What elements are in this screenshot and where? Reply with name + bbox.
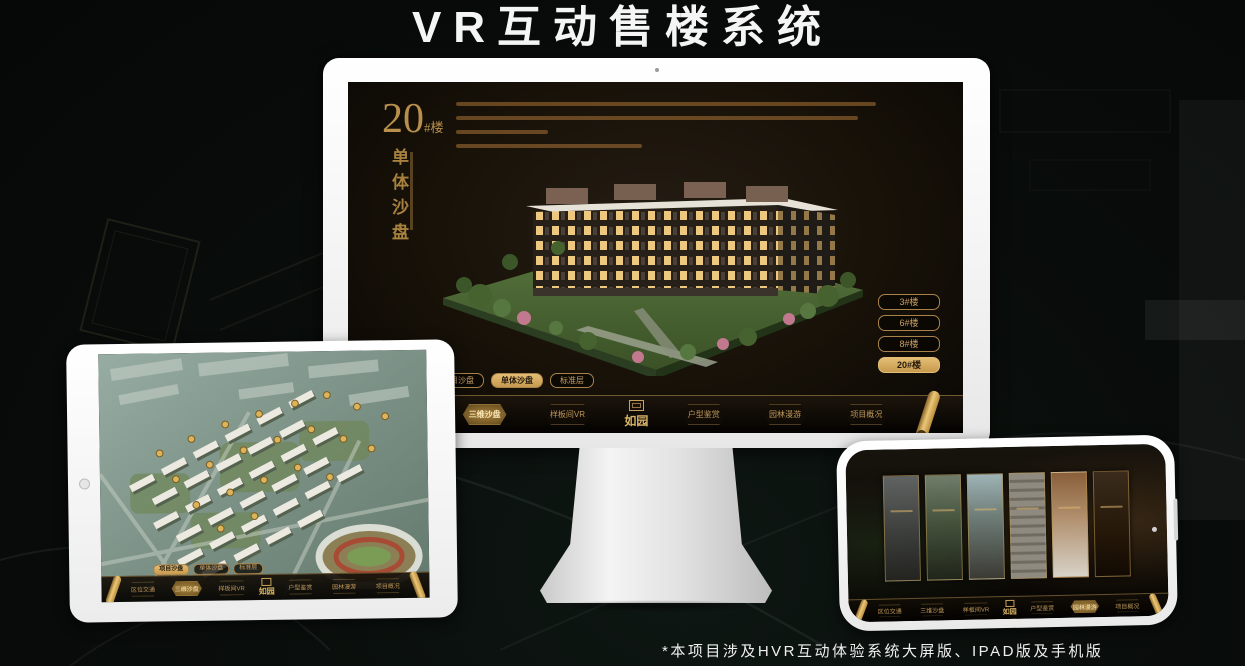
tab-standard-floor[interactable]: 标准层 xyxy=(550,373,594,388)
seal-icon xyxy=(261,578,271,586)
background-plaque-inner xyxy=(92,230,189,342)
panorama-gallery xyxy=(883,470,1131,581)
nav-item-floorplans[interactable]: 户型鉴赏 xyxy=(678,404,730,425)
nav-item-floorplans[interactable]: 户型鉴赏 xyxy=(282,579,318,595)
phone-camera-icon xyxy=(1152,527,1157,532)
brand-logo-text: 如园 xyxy=(1003,606,1017,616)
phone-device: 区位交通 三维沙盘 样板间VR 如园 户型鉴赏 园林漫游 项目概况 xyxy=(836,434,1178,631)
floor-button-8[interactable]: 8#楼 xyxy=(878,336,940,352)
aerial-masterplan-view[interactable] xyxy=(98,350,429,603)
floor-button-3[interactable]: 3#楼 xyxy=(878,294,940,310)
nav-item-project-overview[interactable]: 项目概况 xyxy=(370,578,406,594)
building-title: 20#楼 xyxy=(382,98,444,140)
nav-item-garden-tour[interactable]: 园林漫游 xyxy=(759,404,811,425)
brand-logo[interactable]: 如园 xyxy=(1003,599,1017,616)
nav-item-garden-tour[interactable]: 园林漫游 xyxy=(1068,600,1102,614)
poster-canvas: VR互动售楼系统 20#楼 单体沙盘 xyxy=(0,0,1245,666)
scroll-menu-icon[interactable] xyxy=(409,570,427,601)
nav-item-garden-tour[interactable]: 园林漫游 xyxy=(326,579,362,595)
tablet-tab-project-sandbox[interactable]: 项目沙盘 xyxy=(153,564,189,576)
brand-logo-text: 如园 xyxy=(624,412,648,429)
gallery-panel-interior[interactable] xyxy=(1093,470,1131,577)
gallery-panel-garden[interactable] xyxy=(925,474,963,581)
background-photo-highlight xyxy=(1145,300,1245,340)
nav-item-3d-sandbox[interactable]: 三维沙盘 xyxy=(169,581,205,597)
nav-item-location[interactable]: 区位交通 xyxy=(873,604,907,618)
building-model-3d[interactable] xyxy=(438,148,870,376)
nav-item-3d-sandbox[interactable]: 三维沙盘 xyxy=(459,404,511,425)
brand-logo[interactable]: 如园 xyxy=(624,400,648,429)
tablet-tab-standard-floor[interactable]: 标准层 xyxy=(233,563,263,574)
gallery-panel-building[interactable] xyxy=(1009,472,1047,579)
floor-button-group: 3#楼 6#楼 8#楼 20#楼 xyxy=(878,294,940,378)
scroll-menu-icon[interactable] xyxy=(853,599,868,623)
phone-navbar: 区位交通 三维沙盘 样板间VR 如园 户型鉴赏 园林漫游 项目概况 xyxy=(848,593,1168,623)
section-label-vertical: 单体沙盘 xyxy=(386,148,411,248)
webcam-icon xyxy=(655,68,659,72)
tab-single-sandbox[interactable]: 单体沙盘 xyxy=(491,373,543,388)
edition-footnote: *本项目涉及HVR互动体验系统大屏版、IPAD版及手机版 xyxy=(662,640,1103,661)
brand-logo-text: 如园 xyxy=(259,586,275,597)
page-title: VR互动售楼系统 xyxy=(0,0,1245,56)
scroll-menu-icon[interactable] xyxy=(1148,592,1164,617)
nav-item-floorplans[interactable]: 户型鉴赏 xyxy=(1025,600,1059,614)
nav-item-3d-sandbox[interactable]: 三维沙盘 xyxy=(915,603,949,617)
description-line xyxy=(456,102,876,106)
nav-item-showroom-vr[interactable]: 样板间VR xyxy=(540,404,595,425)
brand-logo[interactable]: 如园 xyxy=(258,578,274,597)
building-number: 20 xyxy=(382,96,424,142)
floor-button-20[interactable]: 20#楼 xyxy=(878,357,940,373)
tablet-navbar: 区位交通 三维沙盘 样板间VR 如园 户型鉴赏 园林漫游 项目概况 xyxy=(101,572,429,603)
seal-icon xyxy=(629,400,644,411)
nav-item-project-overview[interactable]: 项目概况 xyxy=(1110,599,1144,613)
tablet-device: 项目沙盘 单体沙盘 标准层 区位交通 三维沙盘 样板间VR 如园 户型鉴赏 园林… xyxy=(66,339,458,622)
gallery-panel-courtyard[interactable] xyxy=(883,475,921,582)
monitor-stand-shadow xyxy=(540,600,772,612)
nav-item-project-overview[interactable]: 项目概况 xyxy=(840,404,892,425)
phone-side-button xyxy=(1173,498,1178,540)
description-line xyxy=(456,116,858,120)
nav-item-showroom-vr[interactable]: 样板间VR xyxy=(212,580,251,596)
nav-item-location[interactable]: 区位交通 xyxy=(125,581,161,597)
phone-screen: 区位交通 三维沙盘 样板间VR 如园 户型鉴赏 园林漫游 项目概况 xyxy=(845,444,1169,623)
nav-item-showroom-vr[interactable]: 样板间VR xyxy=(958,602,995,616)
section-label-english-caption xyxy=(410,152,413,230)
gallery-panel-autumn-scene[interactable] xyxy=(1051,471,1089,578)
gallery-panel-landscape[interactable] xyxy=(967,473,1005,580)
scroll-menu-icon[interactable] xyxy=(105,574,122,602)
tablet-camera-icon xyxy=(79,478,90,489)
scroll-menu-icon[interactable] xyxy=(914,389,941,433)
floor-button-6[interactable]: 6#楼 xyxy=(878,315,940,331)
building-number-suffix: #楼 xyxy=(424,120,444,135)
tablet-screen: 项目沙盘 单体沙盘 标准层 区位交通 三维沙盘 样板间VR 如园 户型鉴赏 园林… xyxy=(98,350,429,603)
tablet-tab-single-sandbox[interactable]: 单体沙盘 xyxy=(193,563,229,575)
description-line xyxy=(456,130,548,134)
sandbox-subtabs: 项目沙盘 单体沙盘 标准层 xyxy=(432,373,594,388)
